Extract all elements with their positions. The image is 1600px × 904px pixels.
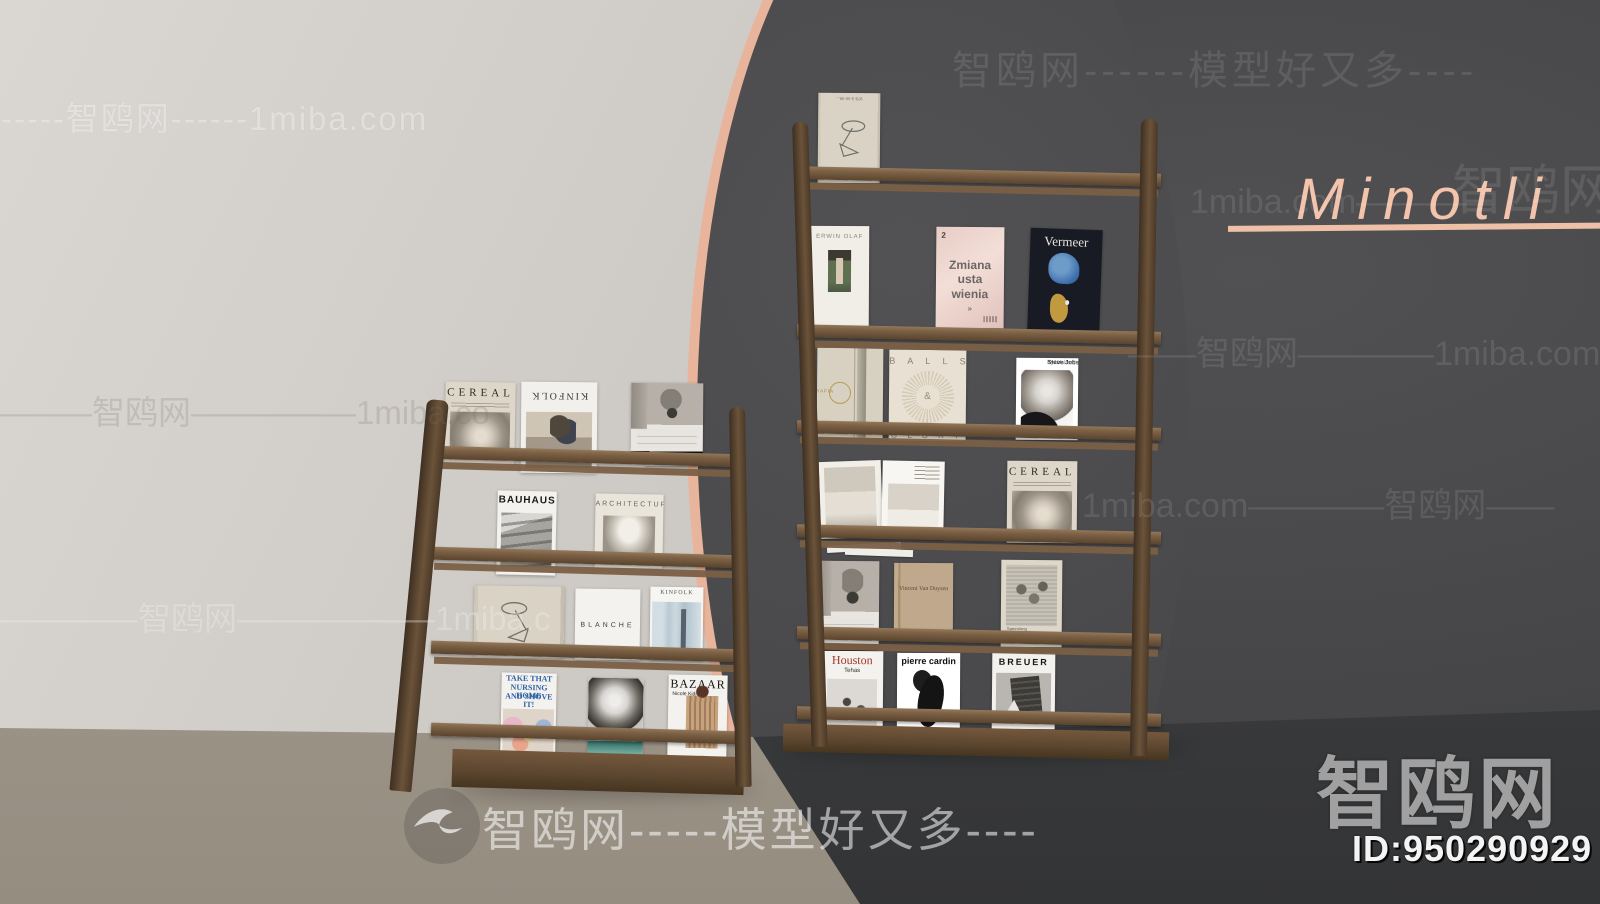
bw-photo — [827, 679, 877, 730]
magazine-interior-photo — [631, 383, 704, 460]
plant-vase — [842, 568, 863, 605]
engraving-art — [1006, 565, 1057, 626]
ampersand: & — [915, 385, 939, 409]
book-vermeer: Vermeer — [1027, 228, 1103, 332]
magazine-title: B A L L S — [889, 356, 966, 367]
cover-textlines — [451, 402, 510, 408]
book-zmiana: 2 Zmiana usta wienia » — [936, 227, 1005, 329]
book-author: by Walter Isaacson — [1047, 360, 1078, 366]
magazine-portrait — [587, 678, 643, 756]
magazine-title: CEREAL — [1007, 466, 1077, 479]
interior-photo — [888, 484, 940, 532]
magazine-title: ERWIN OLAF — [810, 234, 869, 240]
magazine-bazaar: BAZAAR Nicole Kidman — [667, 674, 727, 757]
render-scene: Minotli CEREAL KINFOLK BAUHAUS ARCHITECT… — [0, 0, 1600, 904]
interior-photo — [824, 466, 877, 530]
wireframe-drawing-icon — [825, 105, 873, 170]
book-title: Vincent Van Duysen — [894, 586, 953, 592]
issue-number: 2 — [941, 231, 946, 240]
magazine-title: BLANCHE — [575, 621, 640, 629]
barcode — [984, 316, 998, 322]
book-erwin-olaf: ERWIN OLAF — [810, 226, 870, 326]
wireframe-drawing-icon — [484, 596, 553, 649]
book-title: Houston — [821, 653, 883, 669]
swallow-bird-icon — [412, 800, 470, 840]
book-subtitle: Tehas — [821, 668, 883, 675]
cover-line: AND SHOVE IT! — [501, 692, 556, 710]
magazine-title: KINFOLK — [521, 390, 597, 402]
cover-textlines — [1013, 482, 1072, 488]
isbn-text: 978-3-00-06... — [828, 96, 871, 101]
plant-vase — [660, 389, 685, 420]
fashion-illustration — [685, 686, 719, 755]
model-id: ID:950290929 — [1352, 828, 1592, 870]
text-block — [915, 466, 940, 482]
magazine-title: BAUHAUS — [498, 494, 557, 506]
white-dresser — [637, 430, 698, 449]
magazine-title: Vermeer — [1030, 233, 1103, 252]
book-title: pierre cardin — [897, 656, 960, 666]
book-houston: Houston Tehas — [821, 651, 884, 734]
pearl-earring — [1066, 300, 1070, 305]
magazine-title: RAFIA — [817, 390, 841, 395]
magazine-title: CEREAL — [445, 386, 515, 399]
magazine-take-that: TAKE THAT NURSING HOME AND SHOVE IT! — [500, 672, 557, 755]
magazine-title: KINFOLK — [650, 590, 703, 597]
portrait-photo — [828, 250, 852, 292]
cover-line: wienia — [936, 287, 1004, 301]
book-title: BREUER — [992, 657, 1055, 668]
rack-base — [452, 749, 745, 795]
cover-line: usta — [936, 273, 1004, 287]
magazine-title: ARCHITECTURE — [595, 500, 663, 508]
window-strip — [631, 383, 647, 429]
arrow-glyph: » — [936, 303, 1004, 313]
book-pierre-cardin: pierre cardin — [897, 653, 960, 737]
cover-line: Zmiana — [936, 259, 1004, 273]
